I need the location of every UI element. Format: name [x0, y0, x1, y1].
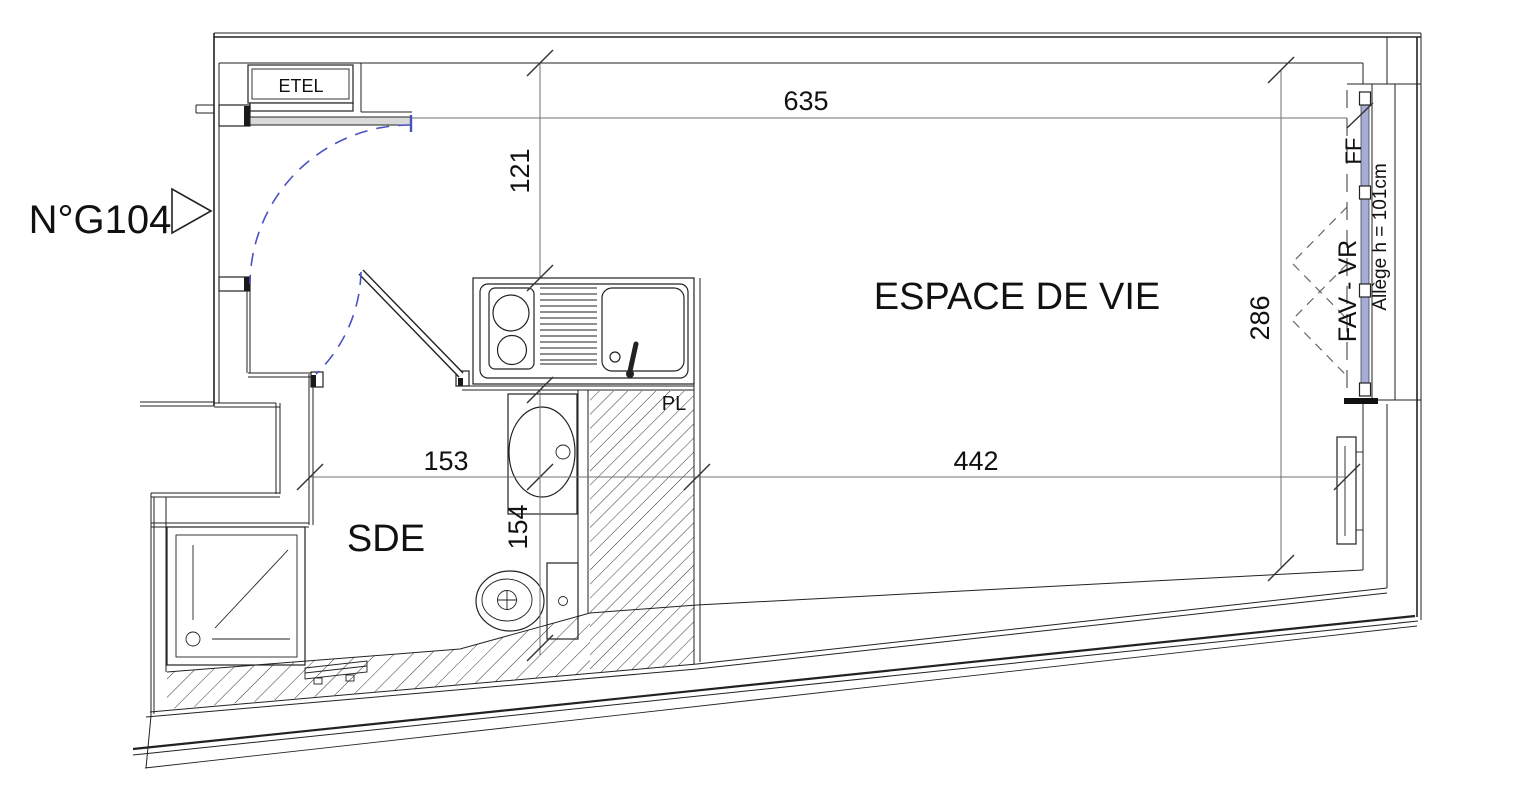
entrance-door-jamb-bottom [244, 277, 250, 291]
kitchen-sink [602, 288, 684, 371]
dim-sde-width: 153 [423, 446, 468, 476]
entrance-door-leaf [250, 117, 411, 125]
dim-window-wall: 286 [1245, 295, 1275, 340]
closet-label: PL [662, 393, 686, 415]
unit-number-label: N°G104 [29, 198, 172, 242]
toilet-bowl [476, 571, 544, 631]
basin-tap [556, 445, 570, 459]
sde-door-swing-arc [316, 272, 361, 374]
window-sill-height-label: Allège h = 101cm [1370, 163, 1391, 310]
cooktop-burner-large [493, 295, 529, 331]
cooktop-burner-small [498, 336, 527, 365]
unit-tag: N°G104 [29, 189, 211, 242]
kitchenette [473, 278, 694, 384]
floor-plan-page: ETEL [0, 0, 1515, 800]
entrance-door [219, 105, 411, 291]
entrance-door-swing-arc [250, 125, 411, 284]
utility-closet: ETEL [248, 63, 412, 112]
shower [167, 527, 305, 665]
sink-faucet-base [626, 370, 634, 378]
window-mullion [1360, 383, 1371, 396]
cooktop [489, 288, 534, 369]
entrance-door-jamb-top [244, 106, 250, 126]
unit-pointer-triangle-icon [172, 189, 211, 233]
shower-room-door [311, 272, 469, 387]
vanity-cabinet [508, 394, 577, 514]
window-mullion [1360, 186, 1371, 199]
sde-door-jamb [311, 375, 316, 387]
utility-closet-label: ETEL [278, 76, 323, 96]
walls [140, 33, 1421, 717]
window-mullion [1360, 92, 1371, 105]
shower-room-label: SDE [347, 518, 425, 560]
radiator [1337, 437, 1363, 544]
dim-entry-depth: 121 [505, 148, 535, 193]
sde-door-hinge-post [458, 378, 463, 386]
room-labels: ESPACE DE VIE SDE [347, 276, 1160, 560]
closet-pl: PL [662, 393, 686, 415]
window-assembly: FF FAV - VR Allège h = 101cm [1292, 84, 1421, 404]
closet-wall-hatch-lower [590, 391, 694, 674]
window-sill-cap [1344, 398, 1378, 404]
sloped-facade [133, 391, 1418, 768]
basin-bowl [509, 407, 575, 497]
sink-drain [610, 352, 620, 362]
dimensions: 635 121 286 153 442 154 [297, 50, 1360, 661]
window-fixed-label: FF [1341, 138, 1366, 165]
dim-sde-length: 154 [503, 504, 533, 549]
dim-top-width: 635 [783, 86, 828, 116]
drainer-grooves [540, 288, 597, 364]
dim-living-width: 442 [953, 446, 998, 476]
shower-drain [186, 632, 200, 646]
washbasin [508, 394, 577, 514]
window-casement-label: FAV - VR [1334, 240, 1362, 342]
sink-faucet [630, 344, 636, 371]
living-room-label: ESPACE DE VIE [874, 276, 1161, 318]
toilet-flush-button [559, 597, 568, 606]
floor-plan-canvas: ETEL [0, 0, 1515, 800]
